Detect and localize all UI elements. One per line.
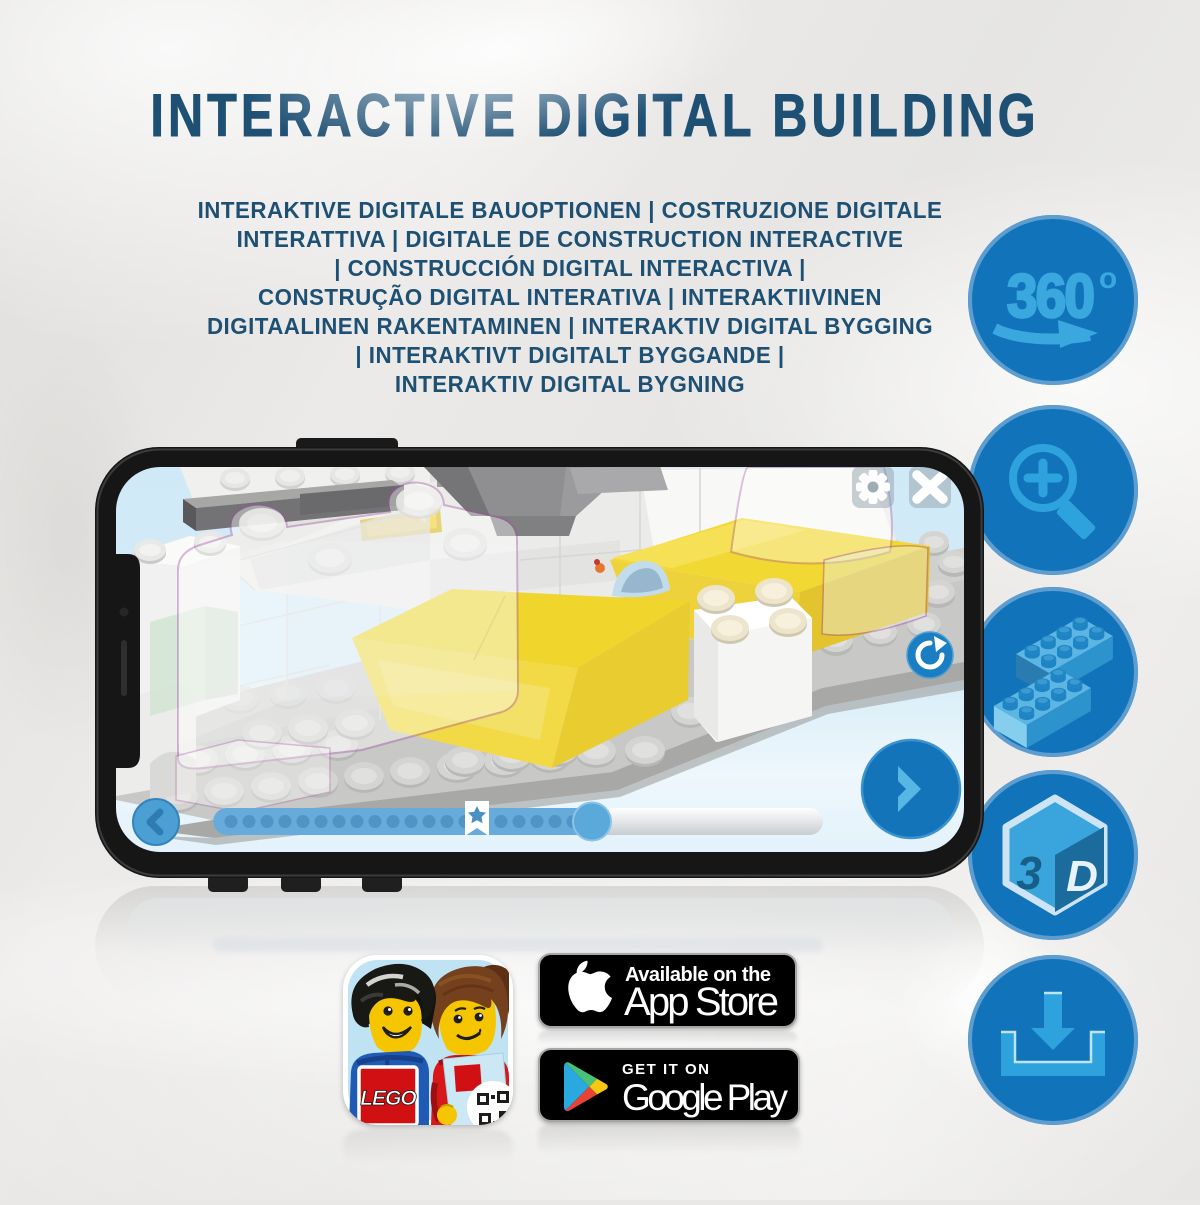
svg-text:o: o (1099, 262, 1117, 295)
svg-text:Google Play: Google Play (622, 1077, 789, 1118)
svg-text:LEGO: LEGO (360, 1087, 416, 1110)
svg-text:360: 360 (1007, 262, 1093, 330)
svg-text:D: D (1066, 852, 1098, 901)
svg-text:3: 3 (1016, 847, 1042, 899)
svg-text:App Store: App Store (624, 980, 779, 1024)
svg-text:GET IT ON: GET IT ON (622, 1061, 711, 1078)
